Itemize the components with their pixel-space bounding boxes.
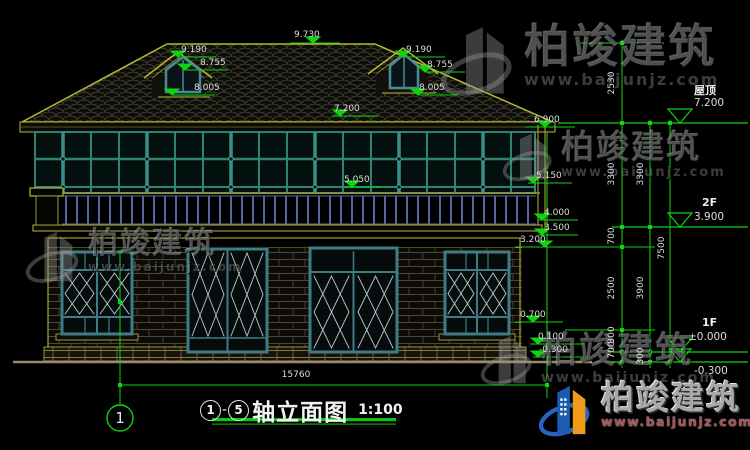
dim-beam-top: 5.150 <box>536 171 562 181</box>
dim-ridge: 9.730 <box>294 30 320 40</box>
dim-total-width: 15760 <box>276 370 316 380</box>
level-ground-value: -0.300 <box>694 365 728 377</box>
dim-window-sill: 0.700 <box>520 310 546 320</box>
window-left <box>56 252 138 340</box>
window-right <box>439 252 515 340</box>
pillar-body <box>36 196 58 225</box>
dim-ground: -0.300 <box>539 345 568 355</box>
roof <box>20 44 555 132</box>
drawing-title: 1 - 5 轴立面图 1:100 <box>200 393 403 427</box>
chain-middle-300: 300 <box>636 333 646 379</box>
title-axis-end: 5 <box>228 400 249 421</box>
company-logo-icon <box>538 381 596 439</box>
plinth <box>44 347 526 361</box>
dim-f2-floor: 3.500 <box>544 223 570 233</box>
logo-brand: 柏竣建筑 <box>601 381 750 414</box>
railing-posts <box>66 196 528 224</box>
dim-dormer-eave-r: 8.755 <box>427 60 453 70</box>
dim-f2-sill: 5.050 <box>344 175 370 185</box>
balcony-railing <box>30 188 542 231</box>
french-door-center <box>310 248 397 352</box>
level-roof-value: 7.200 <box>694 97 724 109</box>
level-1f-label: 1F <box>702 316 717 329</box>
chain-middle-3300: 3300 <box>636 151 646 197</box>
company-logo: 柏竣建筑 www.baijunjz.com <box>538 381 750 439</box>
level-markers-right <box>558 109 748 362</box>
dim-railing-base: 4.000 <box>544 208 570 218</box>
title-separator: - <box>222 402 227 418</box>
level-2f-value: 3.900 <box>694 211 724 223</box>
chain-inner-700b: 700 <box>607 327 617 373</box>
dim-dormer-peak: 9.190 <box>181 45 207 55</box>
pillar-cap <box>30 188 63 196</box>
level-1f-value: ±0.000 <box>688 331 727 343</box>
second-floor-curtain-wall <box>35 125 545 231</box>
title-axis-start: 1 <box>200 400 221 421</box>
logo-site: www.baijunjz.com <box>601 414 750 429</box>
dim-dormer-sill: 8.005 <box>194 83 220 93</box>
dim-plinth-top: 0.100 <box>538 332 564 342</box>
dim-dormer-sill-r: 8.005 <box>419 83 445 93</box>
dim-dormer-peak-r: 9.190 <box>406 45 432 55</box>
chain-inner-2500: 2500 <box>607 265 617 311</box>
axis-bubble-label: 1 <box>112 409 128 427</box>
dim-eave-bottom: 6.900 <box>534 115 560 125</box>
cad-elevation-drawing: 柏竣建筑 www.baijunjz.com 柏竣建筑 www.baijunjz.… <box>0 0 750 450</box>
chain-inner-700a: 700 <box>607 213 617 259</box>
dim-eave-top: 7.200 <box>334 104 360 114</box>
dim-window-head: 3.200 <box>520 235 546 245</box>
chain-inner-3300: 3300 <box>607 151 617 197</box>
dim-dormer-eave: 8.755 <box>200 58 226 68</box>
title-name: 轴立面图 <box>252 393 348 427</box>
title-scale: 1:100 <box>358 402 403 418</box>
chain-outer-7500: 7500 <box>657 225 667 271</box>
level-2f-label: 2F <box>702 196 717 209</box>
french-door-left <box>188 249 267 352</box>
level-roof-label: 屋顶 <box>694 82 716 98</box>
chain-inner-2530: 2530 <box>607 60 617 106</box>
chain-middle-3900: 3900 <box>636 265 646 311</box>
